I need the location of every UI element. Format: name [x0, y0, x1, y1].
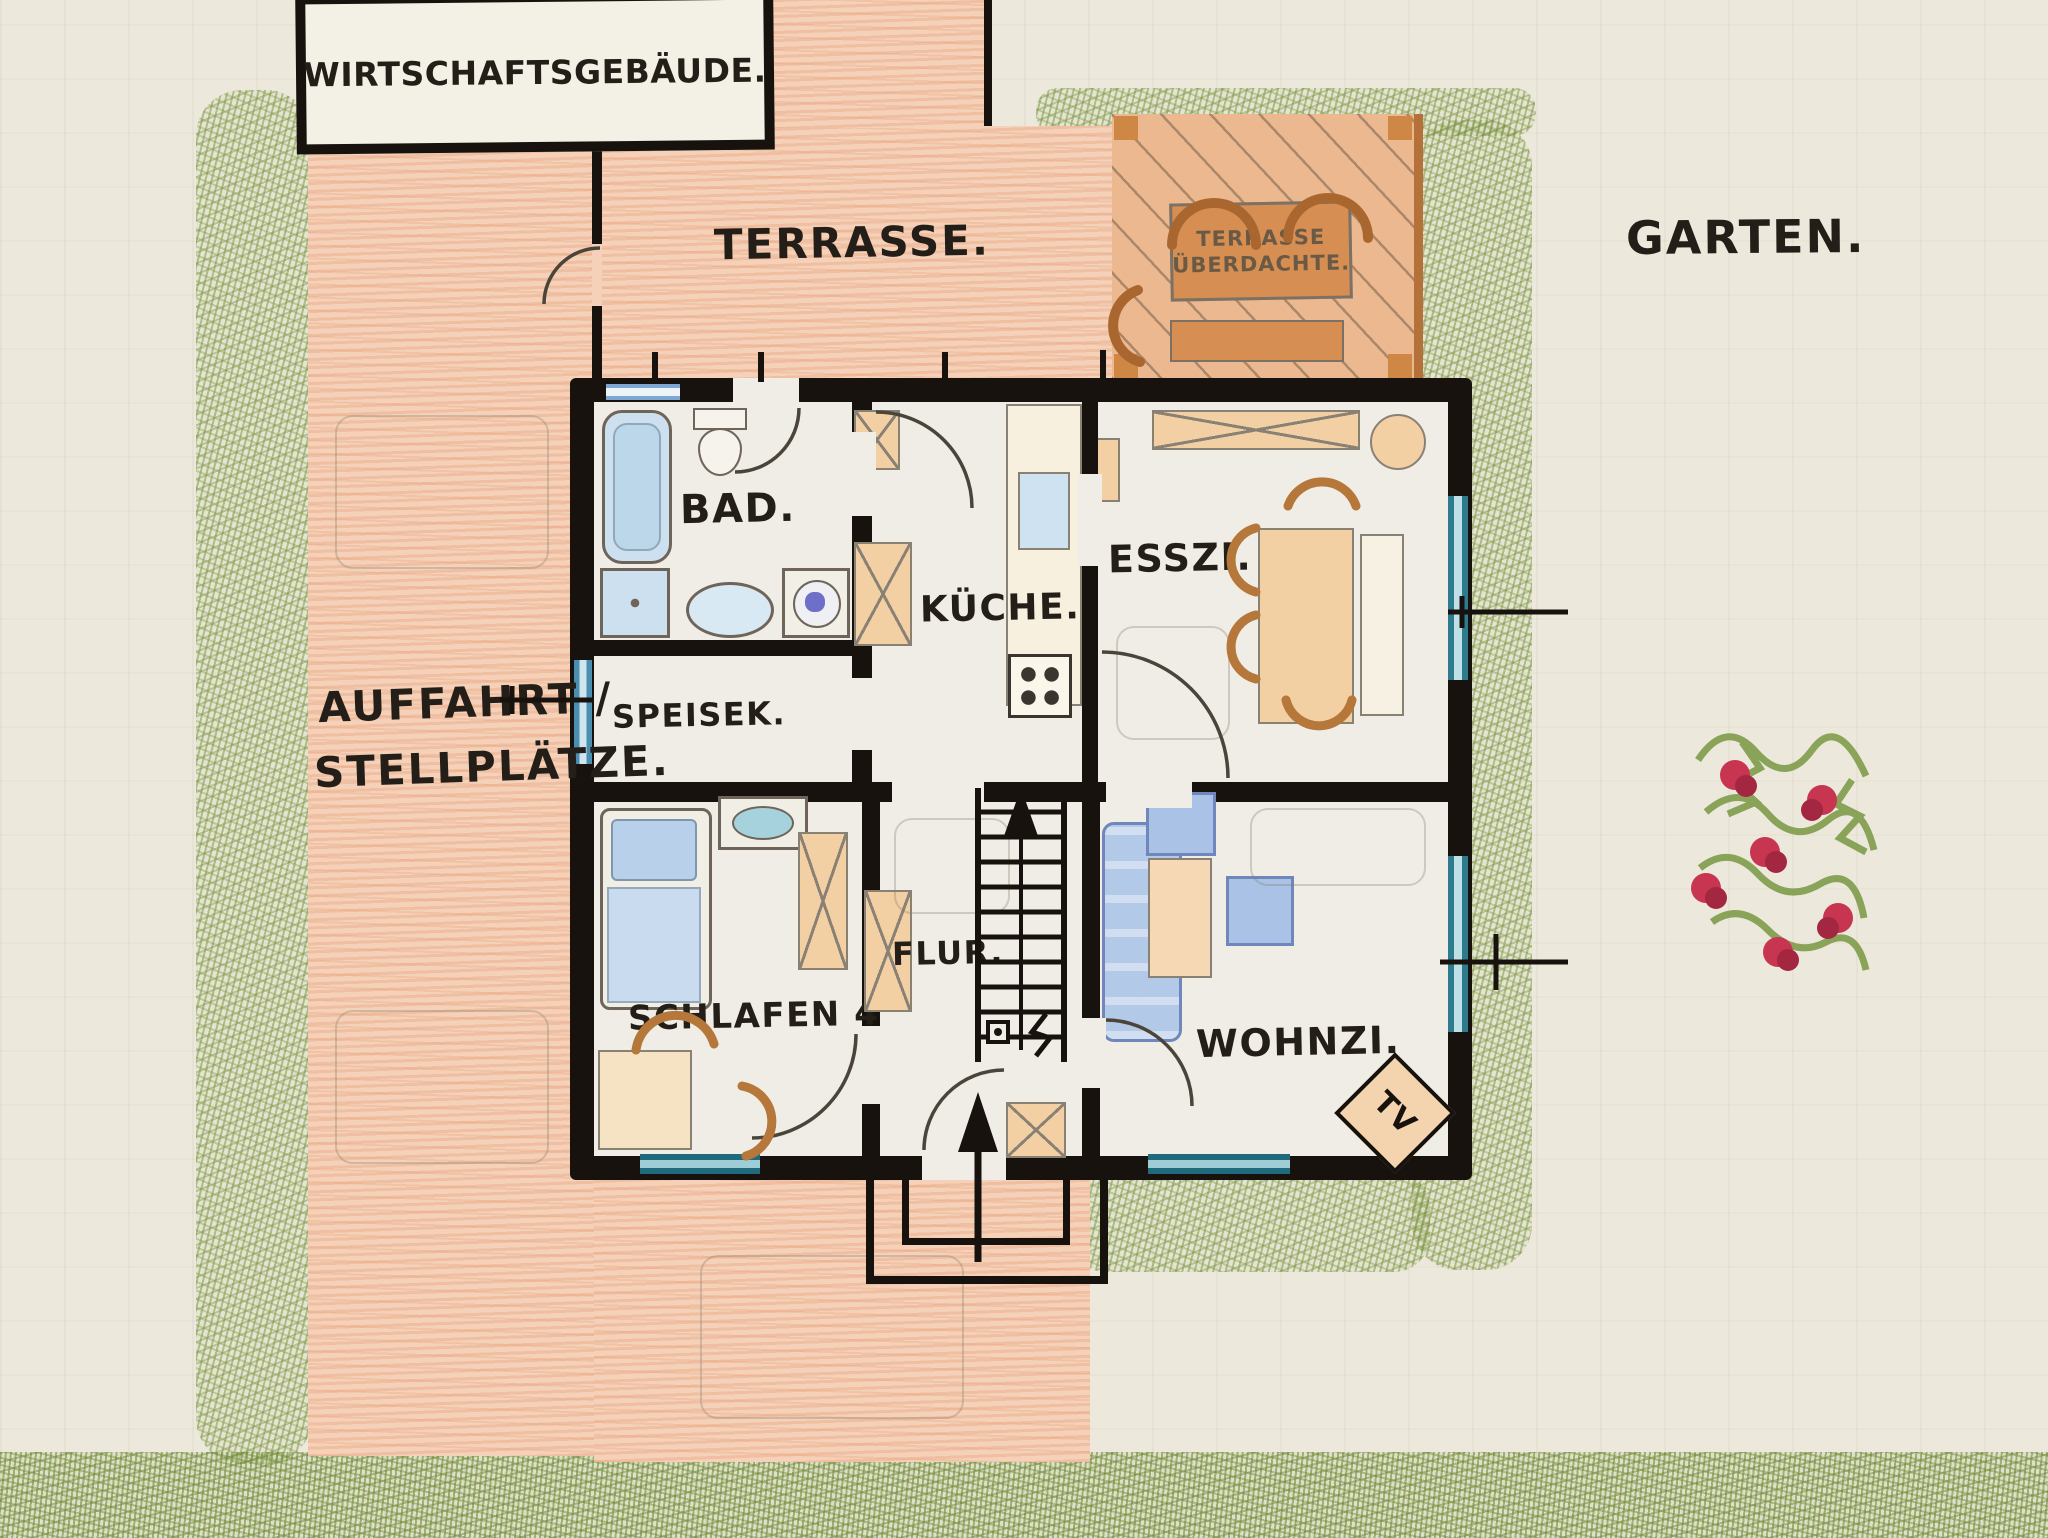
terrace-post [1388, 116, 1412, 140]
wardrobe [798, 832, 848, 970]
pencil-outline [894, 818, 1010, 914]
flur-label: FLUR. [892, 933, 1005, 973]
room-kueche: KÜCHE. [872, 402, 1082, 782]
room-bad: BAD. [594, 402, 852, 640]
rose-flowers [1691, 760, 1853, 971]
shower [600, 568, 670, 638]
schlafen-door [856, 1026, 886, 1104]
grass-bottom-band [0, 1452, 2048, 1538]
bathtub [602, 410, 672, 564]
hedge-left [196, 90, 312, 1464]
covered-terrace-label-line2: ÜBERDACHTE. [1172, 249, 1350, 278]
outbuilding-label: WIRTSCHAFTSGEBÄUDE. [303, 50, 767, 94]
speisek-door [848, 678, 876, 750]
rose-bush [1698, 737, 1874, 970]
esszi-wohnzi-opening [1106, 776, 1192, 808]
couch-outline [1250, 808, 1426, 886]
tv-cabinet: TV [1334, 1052, 1456, 1174]
esszi-label: ESSZI. [1108, 534, 1253, 581]
vanity-sink [732, 806, 794, 840]
wall-tick [1100, 350, 1106, 382]
speisek-label: SPEISEK. [612, 694, 787, 736]
garden-label: GARTEN. [1626, 209, 1866, 265]
bed-blanket [607, 887, 701, 1003]
bed-pillow [611, 819, 697, 881]
bad-kueche-door [848, 432, 876, 516]
sideboard [1152, 410, 1360, 450]
washing-machine [782, 568, 850, 638]
room-schlafen: SCHLAFEN 4. [594, 802, 862, 1156]
parking-spot-outline [335, 415, 549, 569]
bad-label: BAD. [680, 485, 797, 533]
kueche-label: KÜCHE. [920, 586, 1081, 630]
chimney-shaft [854, 542, 912, 646]
terrace-column-line [984, 0, 992, 126]
wohnzi-door [1076, 1018, 1106, 1088]
kueche-esszi-door [1078, 474, 1102, 566]
covered-terrace-bench [1170, 320, 1344, 362]
covered-terrace: TERRASSE ÜBERDACHTE. [1112, 114, 1423, 380]
hall-opening [892, 776, 984, 808]
room-wohnzi: TV WOHNZI. [1100, 802, 1448, 1156]
bath-sink [686, 582, 774, 638]
covered-terrace-table: TERRASSE ÜBERDACHTE. [1169, 200, 1353, 301]
tv-label: TV [1366, 1084, 1423, 1141]
esszi-window [1448, 496, 1468, 680]
wohnzi-label: WOHNZI. [1196, 1018, 1401, 1066]
entry-shaft-box [1006, 1102, 1066, 1158]
dining-table [1258, 528, 1354, 724]
toilet-cistern [693, 408, 747, 430]
parking-spot-outline [335, 1010, 549, 1164]
armchair [1226, 876, 1294, 946]
terrace-post [1388, 354, 1412, 378]
toilet [690, 408, 746, 476]
porch-inner-step [902, 1180, 1070, 1245]
house-outline: BAD. SPEISEK. KÜCHE. ESSZI. [570, 378, 1472, 1180]
pencil-outline [1116, 626, 1230, 740]
bed [600, 808, 712, 1010]
wall-tick [942, 352, 948, 382]
hedge-below-house [1070, 1172, 1430, 1272]
wohnzi-window-bottom [1148, 1154, 1290, 1174]
terrace-post [1114, 116, 1138, 140]
schlafen-label: SCHLAFEN 4. [628, 993, 894, 1039]
wohnzi-window-right [1448, 856, 1468, 1032]
terrace-door-gap [592, 244, 602, 306]
bathtub-basin [613, 423, 661, 551]
bad-window [606, 384, 680, 400]
covered-terrace-label-line1: TERRASSE [1196, 224, 1325, 252]
vanity-unit [718, 796, 808, 850]
desk [598, 1050, 692, 1150]
driveway-label-line1: AUFFAHRT / [317, 673, 613, 732]
terrace-post [1114, 354, 1138, 378]
terrace-label: TERRASSE. [714, 216, 991, 270]
washer-window [805, 592, 825, 612]
terrace-door-opening [733, 378, 799, 406]
outbuilding-sign: WIRTSCHAFTSGEBÄUDE. [295, 0, 775, 154]
hand-drawn-site-plan: TERRASSE ÜBERDACHTE. WIRTSCHAFTSGEBÄUDE.… [0, 0, 2048, 1538]
terrace-top-column [748, 0, 988, 128]
wall-tick [758, 352, 764, 382]
wall-tick [652, 352, 658, 382]
dining-cabinet [1360, 534, 1404, 716]
toilet-bowl [698, 428, 742, 476]
room-esszi: ESSZI. [1098, 402, 1448, 782]
entrance-door-opening [922, 1152, 1006, 1180]
kitchen-sink [1018, 472, 1070, 550]
schlafen-window [640, 1154, 760, 1174]
coffee-table [1148, 858, 1212, 978]
round-table [1370, 414, 1426, 470]
stove [1008, 654, 1072, 718]
